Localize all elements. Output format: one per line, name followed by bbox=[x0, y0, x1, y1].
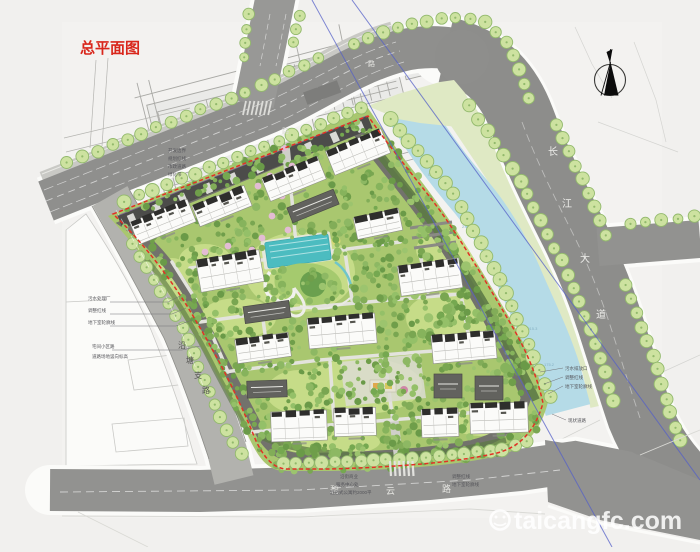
svg-text:塘: 塘 bbox=[186, 355, 194, 365]
svg-text:规划红线: 规划红线 bbox=[168, 155, 186, 162]
svg-text:总平面图: 总平面图 bbox=[80, 39, 140, 57]
svg-text:调整红线: 调整红线 bbox=[565, 374, 583, 381]
svg-text:支: 支 bbox=[194, 370, 202, 380]
svg-text:沿街商业: 沿街商业 bbox=[340, 473, 358, 480]
svg-text:路: 路 bbox=[202, 385, 210, 395]
svg-text:道路场地竖向标高: 道路场地竖向标高 bbox=[92, 353, 128, 360]
svg-text:地下室轮廓线: 地下室轮廓线 bbox=[565, 383, 592, 390]
svg-text:绿化带: 绿化带 bbox=[168, 171, 182, 178]
svg-text:江: 江 bbox=[562, 198, 572, 210]
svg-text:路: 路 bbox=[368, 59, 375, 68]
svg-text:服务中心处: 服务中心处 bbox=[336, 481, 359, 488]
svg-text:污水排放口: 污水排放口 bbox=[565, 365, 588, 372]
svg-text:开发边界: 开发边界 bbox=[168, 147, 186, 154]
svg-text:taicangfc.com: taicangfc.com bbox=[514, 507, 682, 535]
svg-text:地下室轮廓线: 地下室轮廓线 bbox=[452, 481, 479, 488]
svg-text:175.2: 175.2 bbox=[544, 362, 555, 367]
svg-text:路: 路 bbox=[442, 483, 451, 494]
svg-text:地下室轮廓线: 地下室轮廓线 bbox=[88, 319, 115, 326]
svg-text:道: 道 bbox=[596, 308, 606, 321]
svg-text:调整红线: 调整红线 bbox=[88, 307, 106, 314]
svg-text:大: 大 bbox=[580, 252, 590, 265]
svg-text:路: 路 bbox=[282, 126, 289, 135]
svg-text:长: 长 bbox=[548, 146, 558, 158]
svg-text:沿: 沿 bbox=[178, 341, 186, 350]
svg-text:云: 云 bbox=[386, 486, 395, 496]
svg-text:调整红线: 调整红线 bbox=[452, 473, 470, 480]
svg-text:污水处理厂: 污水处理厂 bbox=[88, 295, 111, 302]
svg-text:酒店式公寓约2000平: 酒店式公寓约2000平 bbox=[330, 489, 372, 496]
svg-text:市政道路: 市政道路 bbox=[168, 163, 186, 170]
svg-text:现状道路: 现状道路 bbox=[568, 417, 586, 424]
svg-text:宅间小区路: 宅间小区路 bbox=[92, 343, 115, 350]
